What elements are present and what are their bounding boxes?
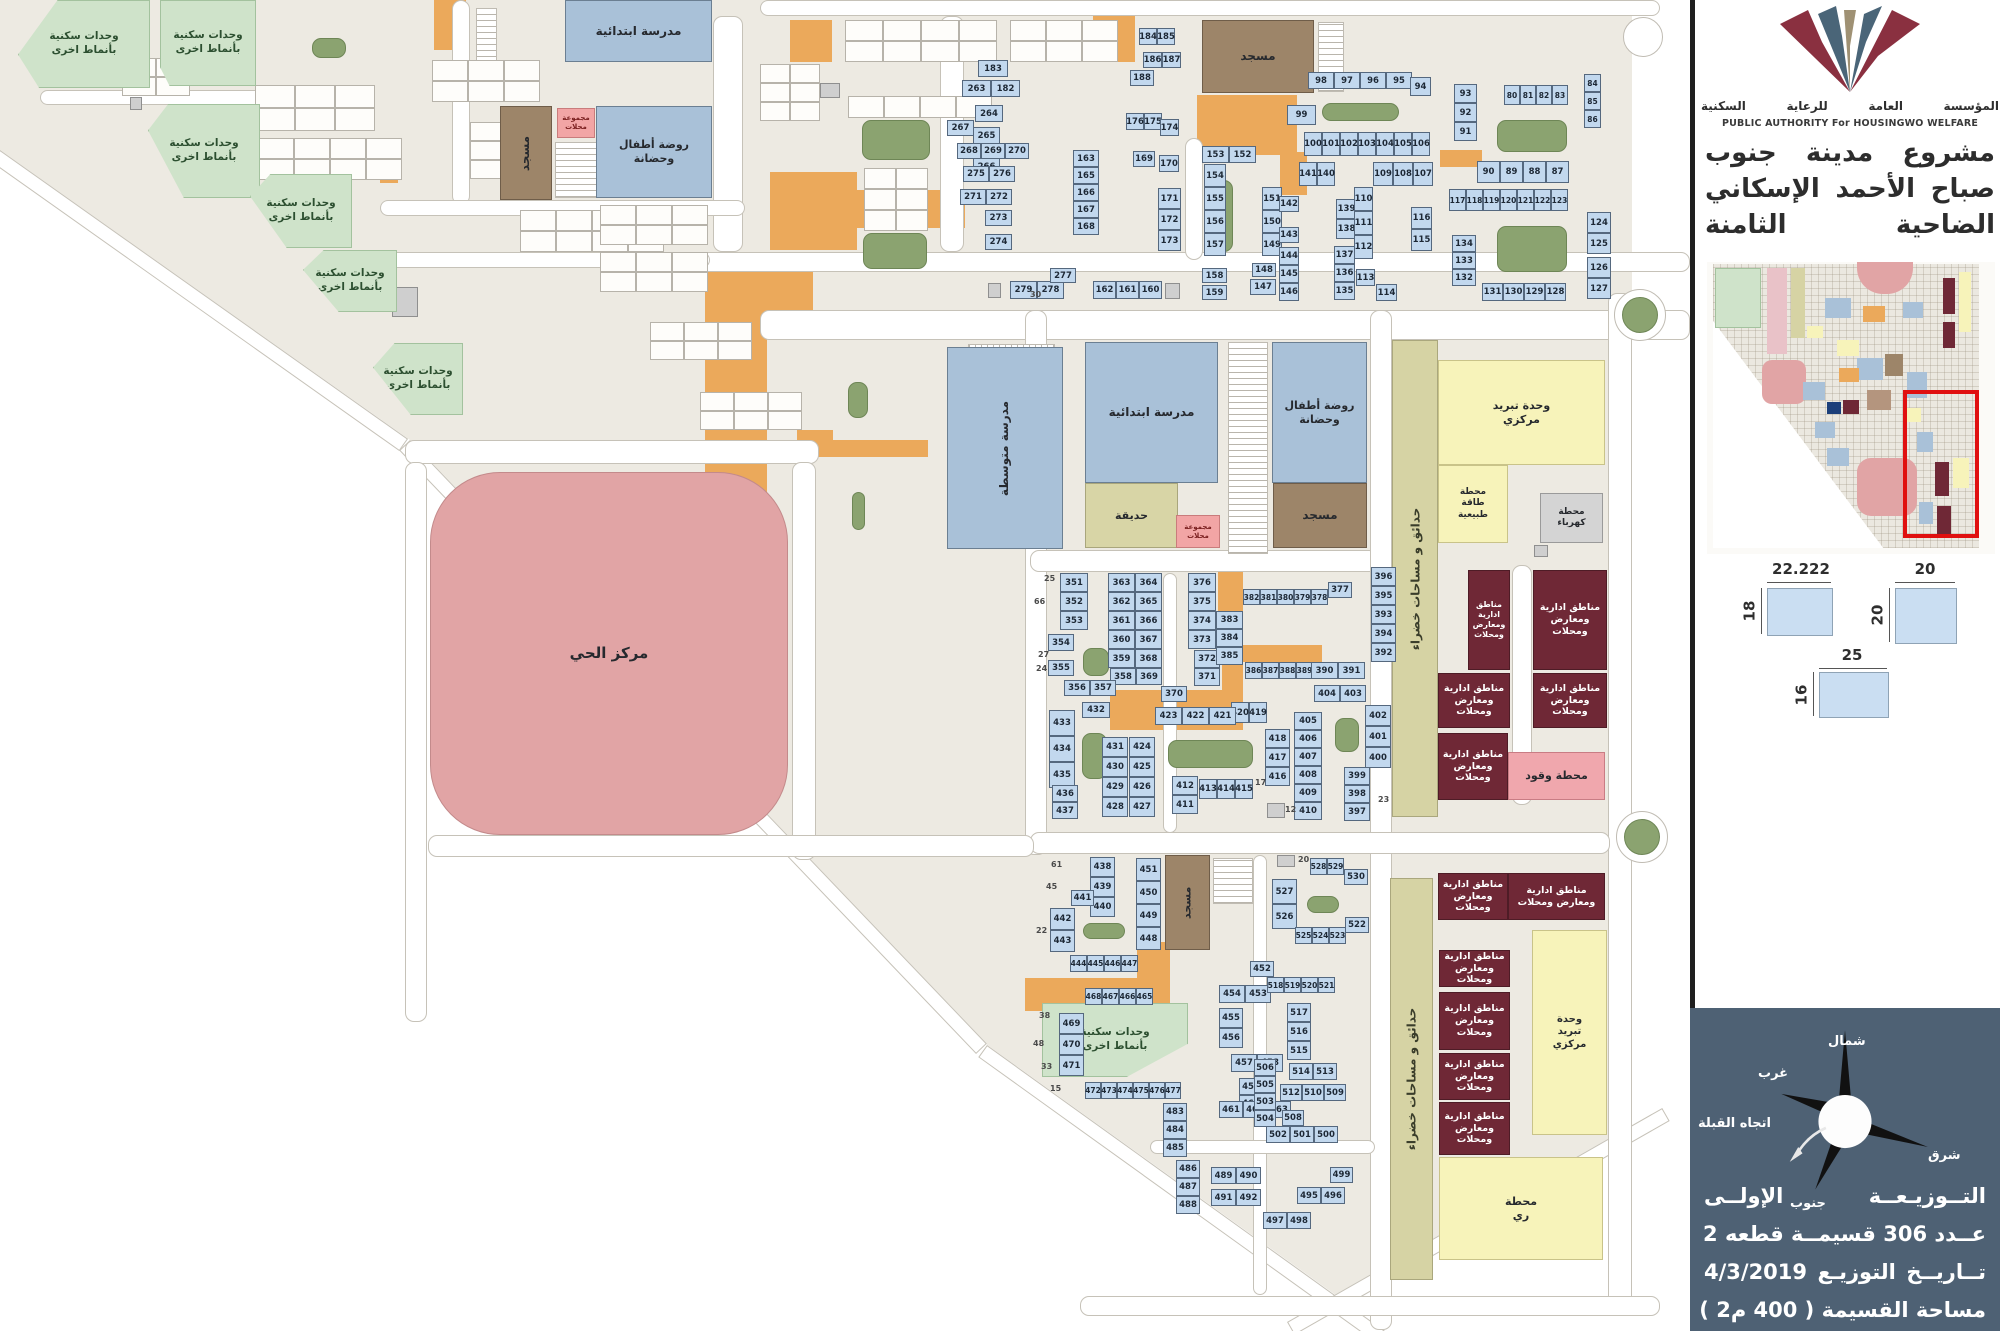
white-plot [684, 322, 718, 341]
plot-cluster-55: 354 [1048, 634, 1074, 651]
plot-cluster-40: 137136135 [1334, 246, 1355, 300]
white-plot-group-14 [864, 168, 928, 231]
plot-520: 520 [1301, 977, 1318, 993]
plot-154: 154 [1204, 164, 1226, 187]
plot-cluster-14: 163165166167168 [1073, 150, 1099, 235]
white-plot [636, 205, 672, 225]
plot-cluster-45: 939291 [1454, 84, 1477, 141]
plot-430: 430 [1102, 757, 1128, 777]
plot-357: 357 [1090, 680, 1116, 696]
white-plot [790, 64, 820, 83]
dim-label-61: 61 [1051, 860, 1062, 869]
plot-cluster-70: 402401400 [1365, 705, 1391, 768]
plot-cluster-105: 512510509 [1280, 1084, 1346, 1101]
white-plot [672, 252, 708, 272]
plot-cluster-15: 184185 [1139, 28, 1175, 45]
plot-cluster-82: 432 [1082, 702, 1110, 718]
plot-cluster-103: 517516515 [1287, 1003, 1311, 1060]
plot-146: 146 [1279, 283, 1299, 301]
white-plot [734, 411, 768, 430]
plot-cluster-108: 483484485 [1163, 1103, 1187, 1157]
plot-490: 490 [1236, 1167, 1261, 1184]
plot-400: 400 [1365, 747, 1391, 768]
white-plot [700, 392, 734, 411]
plot-100: 100 [1304, 132, 1322, 156]
plot-371: 371 [1194, 668, 1220, 686]
plot-354: 354 [1048, 634, 1074, 651]
plot-504: 504 [1254, 1110, 1276, 1127]
plot-356: 356 [1064, 680, 1090, 696]
road-13 [792, 462, 816, 860]
plot-447: 447 [1121, 955, 1138, 972]
plot-cluster-10: 274 [985, 234, 1012, 250]
plot-cluster-96: 452 [1250, 961, 1274, 977]
white-plot [432, 60, 468, 81]
white-plot [520, 231, 556, 252]
plot-87: 87 [1546, 161, 1569, 183]
admin-exhibitions-block-9: مناطق ادارية ومعارض ومحلات [1439, 1053, 1510, 1100]
plot-415: 415 [1235, 779, 1253, 799]
plot-99: 99 [1287, 105, 1316, 125]
garden-1: حديقة [1085, 483, 1178, 548]
plot-cluster-85: 442443 [1050, 908, 1075, 952]
white-plot [921, 41, 959, 62]
plot-cluster-111: 491492 [1211, 1189, 1261, 1206]
white-plot [1046, 41, 1082, 62]
dim-label-15: 15 [1050, 1084, 1061, 1093]
plot-cluster-50: 134133132 [1452, 235, 1476, 286]
plot-529: 529 [1327, 858, 1344, 875]
dim-label-45: 45 [1046, 882, 1057, 891]
white-plot [520, 210, 556, 231]
plot-114: 114 [1376, 284, 1397, 301]
plot-374: 374 [1188, 611, 1216, 630]
dim-label-30: 30 [1030, 290, 1041, 299]
plot-cluster-1: 263182 [962, 80, 1020, 97]
compass-east-label: شرق [1928, 1148, 1961, 1163]
natural-energy-station: محطة طاقة طبيعية [1438, 465, 1508, 543]
plot-489: 489 [1211, 1167, 1236, 1184]
plot-90: 90 [1477, 161, 1500, 183]
park-8 [1168, 740, 1253, 768]
plot-184: 184 [1139, 28, 1157, 45]
white-plot [768, 411, 802, 430]
plot-cluster-37: 143 [1279, 227, 1299, 243]
plot-449: 449 [1136, 904, 1161, 927]
project-title-line-1: مشروع مدينة جنوب [1705, 138, 1995, 168]
plot-cluster-62: 370 [1161, 686, 1187, 702]
legend-plot-20x20: 20 20 [1881, 560, 1969, 652]
plot-433: 433 [1049, 710, 1075, 736]
white-plot-group-15 [600, 205, 708, 245]
plot-144: 144 [1279, 247, 1299, 265]
plot-426: 426 [1129, 777, 1155, 797]
admin-exhibitions-block-6: مناطق ادارية ومعارض ومحلات [1508, 873, 1605, 920]
dim-label-33: 33 [1041, 1062, 1052, 1071]
white-plot [600, 272, 636, 292]
plot-cluster-5: 267 [947, 120, 974, 136]
plot-cluster-57: 358369 [1110, 668, 1162, 685]
plot-387: 387 [1262, 662, 1279, 679]
plot-442: 442 [1050, 908, 1075, 930]
plot-105: 105 [1394, 132, 1412, 156]
plot-cluster-90: 451450449448 [1136, 858, 1161, 950]
plot-475: 475 [1133, 1082, 1149, 1099]
plot-187: 187 [1162, 52, 1181, 68]
plot-412: 412 [1172, 776, 1198, 795]
plot-513: 513 [1313, 1063, 1337, 1080]
white-plot [1010, 41, 1046, 62]
plot-103: 103 [1358, 132, 1376, 156]
project-title-line-3: الضاحية الثامنة [1705, 210, 1995, 240]
plot-270: 270 [1005, 143, 1029, 159]
plot-cluster-22: 171172173 [1158, 188, 1181, 251]
plot-128: 128 [1545, 283, 1566, 301]
dim-label-24: 24 [1036, 664, 1047, 673]
plot-cluster-95: 525524523 [1295, 927, 1346, 944]
plot-93: 93 [1454, 84, 1477, 103]
plot-86: 86 [1584, 110, 1601, 128]
plot-274: 274 [985, 234, 1012, 250]
elementary-school-2: مدرسة ابتدائية [1085, 342, 1218, 483]
plot-510: 510 [1302, 1084, 1324, 1101]
plot-140: 140 [1317, 162, 1335, 186]
plot-cluster-0: 183 [978, 60, 1008, 77]
plot-82: 82 [1536, 85, 1552, 105]
plot-443: 443 [1050, 930, 1075, 952]
plot-428: 428 [1102, 797, 1128, 817]
white-plot [468, 60, 504, 81]
park-11 [1307, 896, 1339, 913]
white-plot [295, 108, 335, 131]
plot-432: 432 [1082, 702, 1110, 718]
residential-units-block-3: وحدات سكنية بأنماط اخرى [250, 174, 352, 248]
legend-plot-25x16: 25 16 [1803, 646, 1901, 722]
plot-136: 136 [1334, 264, 1355, 282]
plot-269: 269 [981, 143, 1005, 159]
plot-174: 174 [1160, 119, 1179, 136]
plot-360: 360 [1108, 630, 1135, 649]
road-10 [1030, 832, 1610, 854]
white-plot-group-1 [1010, 20, 1118, 62]
distribution-title: التــوزيـعــة الإولــى [1704, 1184, 1986, 1208]
white-plot [959, 20, 997, 41]
plot-cluster-18: 176175 [1126, 113, 1162, 130]
plot-455: 455 [1219, 1008, 1243, 1028]
plot-391: 391 [1338, 662, 1365, 679]
white-plot [636, 252, 672, 272]
plot-cluster-23: 153152 [1202, 146, 1256, 163]
residential-units-block-2: وحدات سكنية بأنماط اخرى [148, 104, 260, 198]
white-plot-group-11 [600, 252, 708, 292]
plot-157: 157 [1204, 233, 1226, 256]
white-plot [921, 20, 959, 41]
plot-375: 375 [1188, 592, 1216, 611]
plot-cluster-46: 80818283 [1504, 85, 1568, 105]
plot-161: 161 [1116, 281, 1139, 299]
plot-388: 388 [1279, 662, 1296, 679]
plot-cluster-29: 148 [1252, 263, 1276, 277]
legend-plot-22x18: 22.222 18 [1755, 560, 1847, 648]
map-canvas: وحدات سكنية بأنماط اخرىوحدات سكنية بأنما… [0, 0, 1690, 1331]
plot-cluster-3: 265 [973, 127, 1000, 144]
pahw-logo-icon [1770, 6, 1930, 96]
plot-168: 168 [1073, 218, 1099, 235]
plot-393: 393 [1371, 605, 1396, 624]
white-plot [504, 60, 540, 81]
plot-277: 277 [1050, 268, 1076, 283]
page: وحدات سكنية بأنماط اخرىوحدات سكنية بأنما… [0, 0, 2000, 1331]
compass-rose-icon [1760, 1028, 1930, 1198]
white-plot [672, 205, 708, 225]
plot-cluster-34: 141140 [1299, 162, 1335, 186]
middle-school: مدرسة متوسطة [947, 347, 1063, 549]
plot-119: 119 [1483, 189, 1500, 211]
white-plot [294, 138, 330, 159]
road-5 [1185, 138, 1203, 260]
plot-142: 142 [1279, 196, 1299, 212]
plot-95: 95 [1386, 72, 1412, 89]
plot-418: 418 [1265, 729, 1290, 748]
plot-527: 527 [1272, 879, 1297, 904]
plot-cluster-115: 499 [1330, 1167, 1353, 1183]
plot-273: 273 [985, 210, 1012, 226]
white-plot [636, 272, 672, 292]
white-plot [335, 85, 375, 108]
mosque-3: مسجد [1273, 483, 1367, 548]
plot-398: 398 [1344, 785, 1370, 803]
white-plot [600, 205, 636, 225]
plot-522: 522 [1345, 917, 1369, 933]
parking-strip-1 [1228, 342, 1268, 554]
plot-141: 141 [1299, 162, 1317, 186]
park-10 [1083, 923, 1125, 939]
plot-424: 424 [1129, 737, 1155, 757]
overview-minimap [1707, 262, 1995, 554]
plot-506: 506 [1254, 1059, 1276, 1076]
plot-153: 153 [1202, 146, 1229, 163]
plot-cluster-107: 506505503504 [1254, 1059, 1276, 1127]
plot-cluster-92: 528529 [1310, 858, 1344, 875]
plot-182: 182 [991, 80, 1020, 97]
plot-cluster-44: 116115 [1411, 207, 1432, 251]
plot-407: 407 [1294, 748, 1322, 766]
plot-505: 505 [1254, 1076, 1276, 1093]
plot-132: 132 [1452, 269, 1476, 286]
substation-0 [820, 83, 840, 98]
plot-484: 484 [1163, 1121, 1187, 1139]
plot-cluster-32: 99 [1287, 105, 1316, 125]
plot-131: 131 [1482, 283, 1503, 301]
plot-373: 373 [1188, 630, 1216, 649]
white-plot [556, 210, 592, 231]
park-12 [1335, 718, 1359, 752]
plot-188: 188 [1130, 70, 1154, 86]
plot-521: 521 [1318, 977, 1335, 993]
plot-378: 378 [1311, 589, 1328, 605]
plot-112: 112 [1354, 235, 1373, 259]
white-plot [600, 252, 636, 272]
plot-379: 379 [1294, 589, 1311, 605]
substation-6 [1165, 283, 1180, 299]
plot-437: 437 [1052, 802, 1078, 819]
white-plot [760, 83, 790, 102]
plot-155: 155 [1204, 187, 1226, 210]
plot-271: 271 [960, 189, 986, 205]
plot-436: 436 [1052, 785, 1078, 802]
plot-127: 127 [1587, 278, 1611, 299]
plot-397: 397 [1344, 803, 1370, 821]
plot-cluster-97: 454453 [1219, 985, 1271, 1003]
plot-98: 98 [1308, 72, 1334, 89]
white-plot [468, 81, 504, 102]
white-plot-group-6 [255, 85, 375, 131]
white-plot [883, 20, 921, 41]
plot-cluster-68: 396395393394392 [1371, 567, 1396, 662]
roundabout-green-1 [1624, 819, 1660, 855]
white-plot-group-12 [650, 322, 752, 360]
plot-377: 377 [1328, 582, 1352, 598]
white-plot [848, 96, 884, 118]
white-plot [255, 108, 295, 131]
plot-101: 101 [1322, 132, 1340, 156]
plot-382: 382 [1243, 589, 1260, 605]
plot-cluster-64: 377 [1328, 582, 1352, 598]
white-plot [600, 225, 636, 245]
plot-528: 528 [1310, 858, 1327, 875]
plot-cluster-27: 159 [1202, 285, 1227, 300]
plot-381: 381 [1260, 589, 1277, 605]
plot-cluster-36: 142 [1279, 196, 1299, 212]
plot-cluster-84: 441 [1071, 890, 1094, 906]
plot-394: 394 [1371, 624, 1396, 643]
white-plot [432, 81, 468, 102]
plot-264: 264 [975, 105, 1003, 122]
plot-473: 473 [1101, 1082, 1117, 1099]
white-plot [790, 102, 820, 121]
plot-364: 364 [1135, 573, 1162, 592]
plot-85: 85 [1584, 92, 1601, 110]
admin-exhibitions-block-1: مناطق ادارية ومعارض ومحلات [1533, 570, 1607, 670]
plot-515: 515 [1287, 1041, 1311, 1060]
plot-530: 530 [1344, 869, 1368, 885]
plot-451: 451 [1136, 858, 1161, 881]
dim-label-20: 20 [1298, 855, 1309, 864]
white-plot [768, 392, 802, 411]
white-plot-group-3 [848, 96, 992, 118]
plot-116: 116 [1411, 207, 1432, 229]
plot-383: 383 [1216, 611, 1243, 629]
commercial-area-10 [1242, 645, 1322, 662]
plot-438: 438 [1090, 857, 1115, 877]
plot-526: 526 [1272, 904, 1297, 929]
district-center: مركز الحي [430, 472, 788, 835]
plot-cluster-20: 169 [1133, 151, 1155, 167]
plot-cluster-52: 124125 [1587, 212, 1611, 254]
plot-cluster-102: 518519520521 [1267, 977, 1335, 993]
plot-137: 137 [1334, 246, 1355, 264]
cooling-unit-2: وحدة تبريد مركزي [1532, 930, 1607, 1135]
park-1 [863, 233, 927, 269]
road-1 [713, 16, 743, 252]
green-spaces-strip-0: حدائق و مساحات خضراء [1392, 340, 1438, 817]
plot-94: 94 [1410, 77, 1431, 96]
plot-cluster-13: 162161160 [1093, 281, 1162, 299]
plot-380: 380 [1277, 589, 1294, 605]
plot-91: 91 [1454, 122, 1477, 141]
shops-group-2: مجموعة محلات [1176, 515, 1220, 548]
plot-169: 169 [1133, 151, 1155, 167]
plot-cluster-76: 424425426427 [1129, 737, 1155, 817]
shops-group-1: مجموعة محلات [557, 108, 595, 138]
plot-355: 355 [1048, 660, 1074, 676]
park-2 [1322, 103, 1399, 121]
plot-165: 165 [1073, 167, 1099, 184]
plot-cluster-104: 514513 [1289, 1063, 1337, 1080]
white-plot [504, 81, 540, 102]
plot-cluster-38: 144145146 [1279, 247, 1299, 301]
white-plot [896, 189, 928, 210]
plot-80: 80 [1504, 85, 1520, 105]
residential-units-block-4: وحدات سكنية بأنماط اخرى [303, 250, 397, 312]
plot-cluster-72: 405406407408409410 [1294, 712, 1322, 820]
plot-446: 446 [1104, 955, 1121, 972]
plot-cluster-6: 268269270 [957, 143, 1029, 159]
white-plot [1010, 20, 1046, 41]
plot-cluster-114: 497498 [1263, 1212, 1311, 1229]
plot-495: 495 [1297, 1187, 1321, 1204]
road-11 [1080, 1296, 1660, 1316]
dim-label-23: 23 [1378, 795, 1389, 804]
plot-485: 485 [1163, 1139, 1187, 1157]
admin-exhibitions-block-8: مناطق ادارية ومعارض ومحلات [1439, 992, 1510, 1050]
plot-cluster-54: 351352353 [1060, 573, 1088, 630]
white-plot [470, 160, 502, 179]
plot-115: 115 [1411, 229, 1432, 251]
plot-109: 109 [1373, 162, 1393, 186]
plot-421: 421 [1209, 707, 1236, 725]
plot-413: 413 [1199, 779, 1217, 799]
plot-390: 390 [1311, 662, 1338, 679]
white-plot [255, 85, 295, 108]
plot-129: 129 [1524, 283, 1545, 301]
plot-445: 445 [1087, 955, 1104, 972]
plot-423: 423 [1155, 707, 1182, 725]
white-plot [790, 83, 820, 102]
plot-147: 147 [1250, 279, 1276, 295]
plot-176: 176 [1126, 113, 1144, 130]
white-plot-group-13 [700, 392, 802, 430]
park-13 [848, 382, 868, 418]
plot-268: 268 [957, 143, 981, 159]
plot-385: 385 [1216, 647, 1243, 665]
plot-cluster-51: 131130129128 [1482, 283, 1566, 301]
plot-cluster-42: 113 [1356, 269, 1375, 286]
org-name-arabic: المؤسسة العامة للرعاية السكنية [1701, 99, 1999, 113]
white-plot [864, 189, 896, 210]
road-12 [405, 440, 819, 464]
residential-units-block-1: وحدات سكنية بأنماط اخرى [160, 0, 256, 86]
plot-514: 514 [1289, 1063, 1313, 1080]
plot-cluster-43: 114 [1376, 284, 1397, 301]
roundabout-green-0 [1622, 297, 1658, 333]
plot-516: 516 [1287, 1022, 1311, 1041]
admin-exhibitions-block-0: مناطق ادارية ومعارض ومحلات [1468, 570, 1510, 670]
plot-cluster-69: 404403 [1314, 685, 1366, 702]
plot-185: 185 [1157, 28, 1175, 45]
mosque-2: مسجد [1202, 20, 1314, 93]
plot-172: 172 [1158, 209, 1181, 230]
